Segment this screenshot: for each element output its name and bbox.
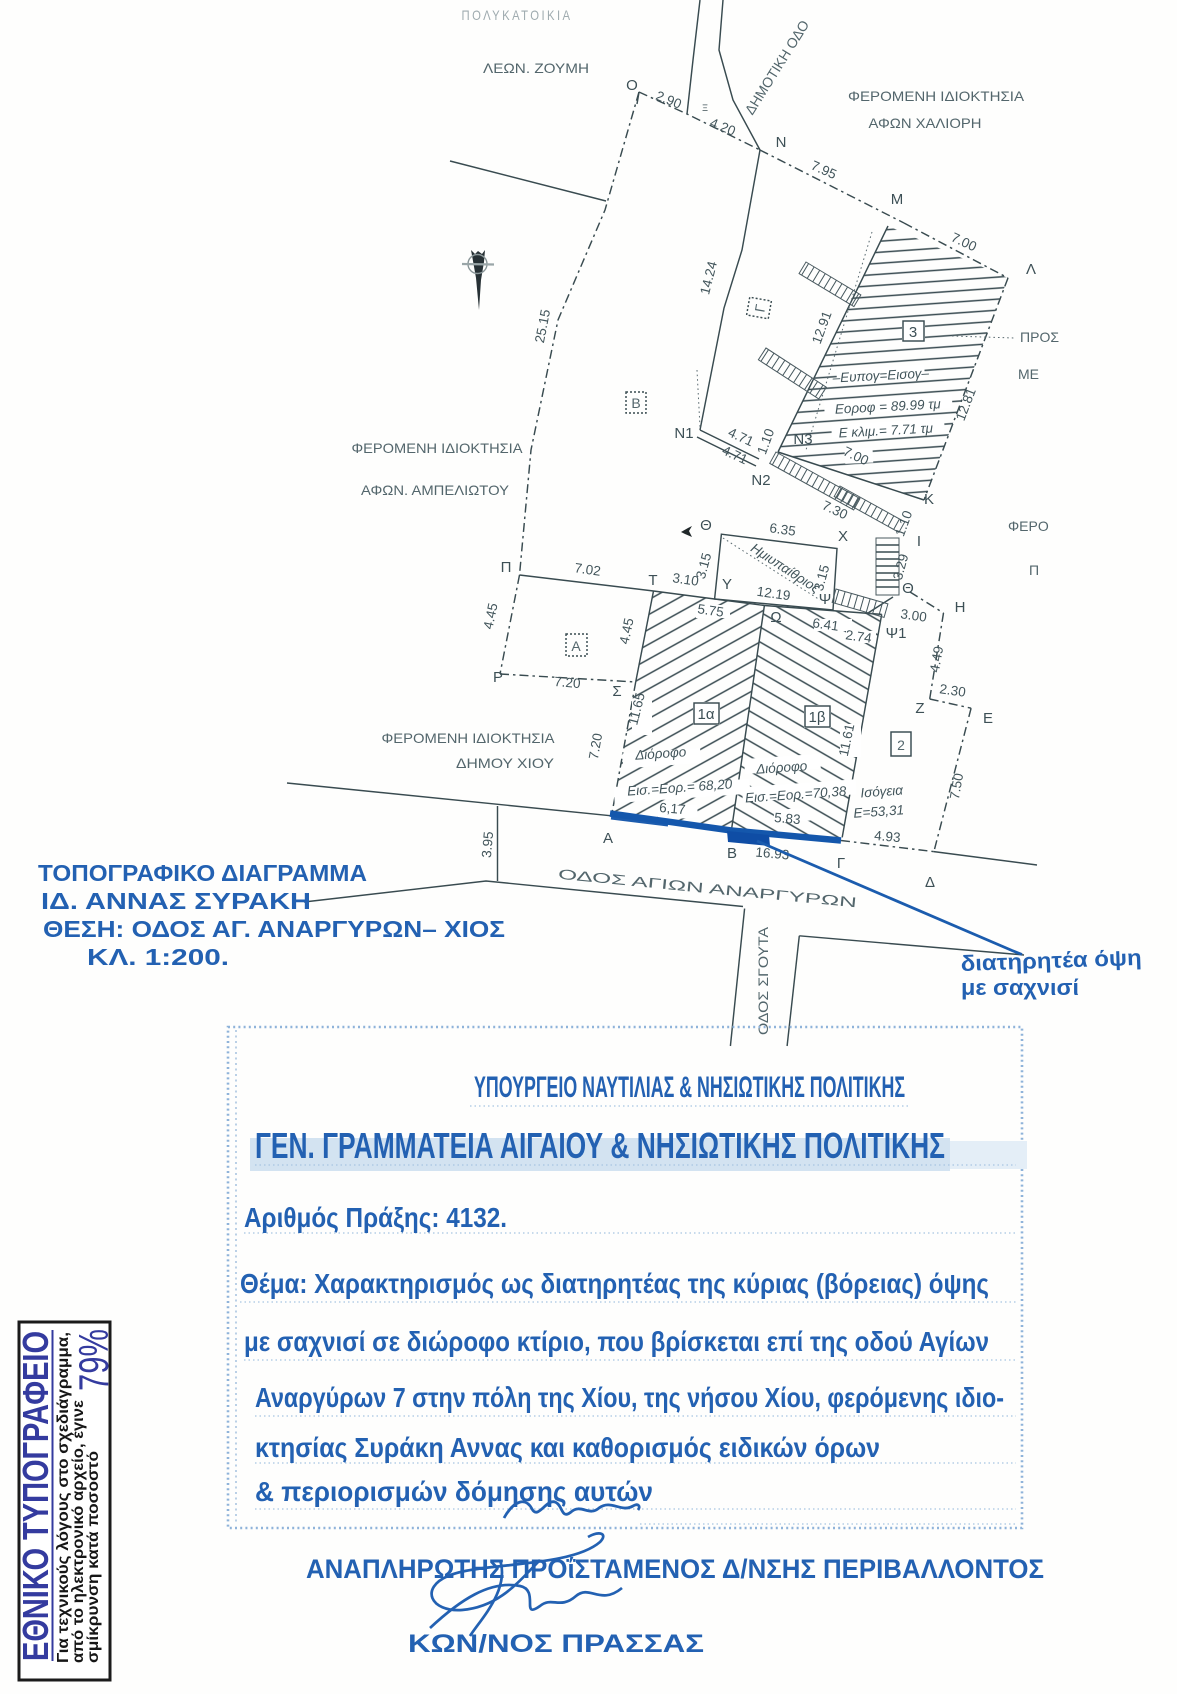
- svg-text:ΚΛ. 1:200.: ΚΛ. 1:200.: [87, 944, 229, 970]
- svg-text:Ω: Ω: [770, 609, 781, 626]
- svg-text:Θ: Θ: [902, 580, 914, 597]
- svg-text:ΦΕΡΟΜΕΝΗ ΙΔΙΟΚΤΗΣΙΑ: ΦΕΡΟΜΕΝΗ ΙΔΙΟΚΤΗΣΙΑ: [382, 730, 556, 746]
- svg-text:M: M: [891, 191, 904, 208]
- svg-text:ΤΟΠΟΓΡΑΦΙΚΟ ΔΙΑΓΡΑΜΜΑ: ΤΟΠΟΓΡΑΦΙΚΟ ΔΙΑΓΡΑΜΜΑ: [38, 860, 367, 886]
- svg-text:79%: 79%: [70, 1329, 117, 1391]
- svg-text:ΜΕ: ΜΕ: [1018, 366, 1039, 382]
- svg-text:Θ: Θ: [700, 517, 712, 534]
- svg-text:ΟΔΟΣ ΣΓΟΥΤΑ: ΟΔΟΣ ΣΓΟΥΤΑ: [755, 926, 771, 1035]
- svg-text:Ξ: Ξ: [702, 103, 708, 113]
- svg-text:P: P: [493, 669, 503, 686]
- svg-text:Αναργύρων 7 στην πόλη της Χίου: Αναργύρων 7 στην πόλη της Χίου, της νήσο…: [255, 1382, 1004, 1413]
- svg-text:ΓΕΝ. ΓΡΑΜΜΑΤΕΙΑ ΑΙΓΑΙΟΥ & ΝΗΣΙ: ΓΕΝ. ΓΡΑΜΜΑΤΕΙΑ ΑΙΓΑΙΟΥ & ΝΗΣΙΩΤΙΚΗΣ ΠΟΛ…: [255, 1125, 945, 1166]
- svg-text:E: E: [983, 710, 993, 727]
- svg-text:ΛΕΩΝ. ΖΟΥΜΗ: ΛΕΩΝ. ΖΟΥΜΗ: [483, 60, 589, 76]
- svg-text:Π: Π: [501, 559, 512, 576]
- svg-text:ΑΦΩΝ. ΑΜΠΕΛΙΩΤΟΥ: ΑΦΩΝ. ΑΜΠΕΛΙΩΤΟΥ: [361, 482, 510, 498]
- svg-text:3: 3: [909, 324, 917, 341]
- svg-text:K: K: [924, 491, 934, 508]
- svg-text:A: A: [603, 830, 613, 847]
- svg-text:ΦΕΡΟΜΕΝΗ ΙΔΙΟΚΤΗΣΙΑ: ΦΕΡΟΜΕΝΗ ΙΔΙΟΚΤΗΣΙΑ: [848, 88, 1025, 104]
- svg-text:ΦΕΡΟΜΕΝΗ ΙΔΙΟΚΤΗΣΙΑ: ΦΕΡΟΜΕΝΗ ΙΔΙΟΚΤΗΣΙΑ: [352, 440, 524, 456]
- svg-text:7.20: 7.20: [554, 674, 581, 691]
- svg-text:ΦΕΡΟ: ΦΕΡΟ: [1008, 518, 1049, 534]
- svg-text:Z: Z: [915, 700, 924, 717]
- svg-text:ΥΠΟΥΡΓΕΙΟ ΝΑΥΤΙΛΙΑΣ & ΝΗΣΙΩΤΙΚ: ΥΠΟΥΡΓΕΙΟ ΝΑΥΤΙΛΙΑΣ & ΝΗΣΙΩΤΙΚΗΣ ΠΟΛΙΤΙΚ…: [474, 1071, 905, 1104]
- svg-text:B: B: [631, 395, 640, 411]
- svg-text:Δ: Δ: [925, 874, 935, 891]
- svg-text:A: A: [571, 638, 581, 654]
- svg-text:Αριθμός Πράξης: 4132.: Αριθμός Πράξης: 4132.: [244, 1202, 507, 1233]
- svg-text:O: O: [626, 77, 638, 94]
- svg-text:B: B: [727, 845, 737, 862]
- svg-text:Λ: Λ: [1026, 261, 1036, 278]
- svg-text:I: I: [917, 533, 921, 550]
- svg-text:με σαχνισί σε διώροφο κτίριο,: με σαχνισί σε διώροφο κτίριο, που βρίσκε…: [244, 1326, 989, 1357]
- svg-text:Ισόγεια: Ισόγεια: [860, 782, 905, 800]
- svg-text:ΑΦΩΝ ΧΑΛΙΟΡΗ: ΑΦΩΝ ΧΑΛΙΟΡΗ: [869, 115, 982, 131]
- svg-text:Ψ: Ψ: [819, 591, 832, 608]
- svg-text:3.95: 3.95: [479, 831, 496, 858]
- svg-text:X: X: [838, 528, 848, 545]
- svg-text:ΙΔ. ΑΝΝΑΣ ΣΥΡΑΚΗ: ΙΔ. ΑΝΝΑΣ ΣΥΡΑΚΗ: [41, 888, 311, 914]
- svg-text:με σαχνισί: με σαχνισί: [961, 975, 1079, 1000]
- svg-text:1α: 1α: [697, 706, 714, 723]
- svg-text:ΔΗΜΟΥ ΧΙΟΥ: ΔΗΜΟΥ ΧΙΟΥ: [456, 755, 555, 771]
- svg-text:N2: N2: [751, 472, 770, 489]
- svg-text:ΠΟΛΥΚΑΤΟΙΚΙΑ: ΠΟΛΥΚΑΤΟΙΚΙΑ: [462, 7, 573, 23]
- svg-text:ΘΕΣΗ: ΟΔΟΣ ΑΓ. ΑΝΑΡΓΥΡΩΝ– ΧΙΟΣ: ΘΕΣΗ: ΟΔΟΣ ΑΓ. ΑΝΑΡΓΥΡΩΝ– ΧΙΟΣ: [43, 916, 505, 942]
- svg-text:Σ: Σ: [612, 683, 621, 700]
- svg-text:σμίκρυνση κατά ποσοστό: σμίκρυνση κατά ποσοστό: [85, 1451, 102, 1663]
- svg-text:ΚΩΝ/ΝΟΣ ΠΡΑΣΣΑΣ: ΚΩΝ/ΝΟΣ ΠΡΑΣΣΑΣ: [408, 1630, 704, 1658]
- svg-text:N1: N1: [674, 425, 693, 442]
- svg-text:Θέμα: Χαρακτηρισμός ως διατηρη: Θέμα: Χαρακτηρισμός ως διατηρητέας της κ…: [240, 1268, 989, 1299]
- svg-text:& περιορισμών δόμησης αυτών: & περιορισμών δόμησης αυτών: [255, 1476, 653, 1507]
- svg-text:Ψ1: Ψ1: [886, 625, 907, 642]
- svg-text:4.93: 4.93: [874, 828, 901, 845]
- svg-text:1β: 1β: [809, 709, 826, 726]
- svg-text:T: T: [648, 572, 657, 589]
- svg-text:κτησίας Συράκη Αννας και καθορ: κτησίας Συράκη Αννας και καθορισμός ειδι…: [255, 1432, 880, 1463]
- svg-text:N3: N3: [793, 431, 812, 448]
- svg-text:Γ: Γ: [837, 855, 845, 872]
- svg-text:Y: Y: [722, 576, 732, 593]
- svg-text:ΑΝΑΠΛΗΡΩΤΗΣ ΠΡΟΐΣΤΑΜΕΝΟΣ Δ/ΝΣΗ: ΑΝΑΠΛΗΡΩΤΗΣ ΠΡΟΐΣΤΑΜΕΝΟΣ Δ/ΝΣΗΣ ΠΕΡΙΒΑΛΛ…: [306, 1554, 1044, 1584]
- svg-text:Π: Π: [1029, 562, 1039, 578]
- svg-text:6,17: 6,17: [659, 800, 686, 817]
- svg-text:5.83: 5.83: [774, 810, 801, 827]
- svg-text:ΠΡΟΣ: ΠΡΟΣ: [1020, 329, 1059, 345]
- svg-text:ΕΘΝΙΚΟ ΤΥΠΟΓΡΑΦΕΙΟ: ΕΘΝΙΚΟ ΤΥΠΟΓΡΑΦΕΙΟ: [15, 1331, 56, 1661]
- svg-text:2: 2: [897, 737, 905, 753]
- svg-text:H: H: [955, 599, 966, 616]
- svg-text:N: N: [776, 134, 787, 151]
